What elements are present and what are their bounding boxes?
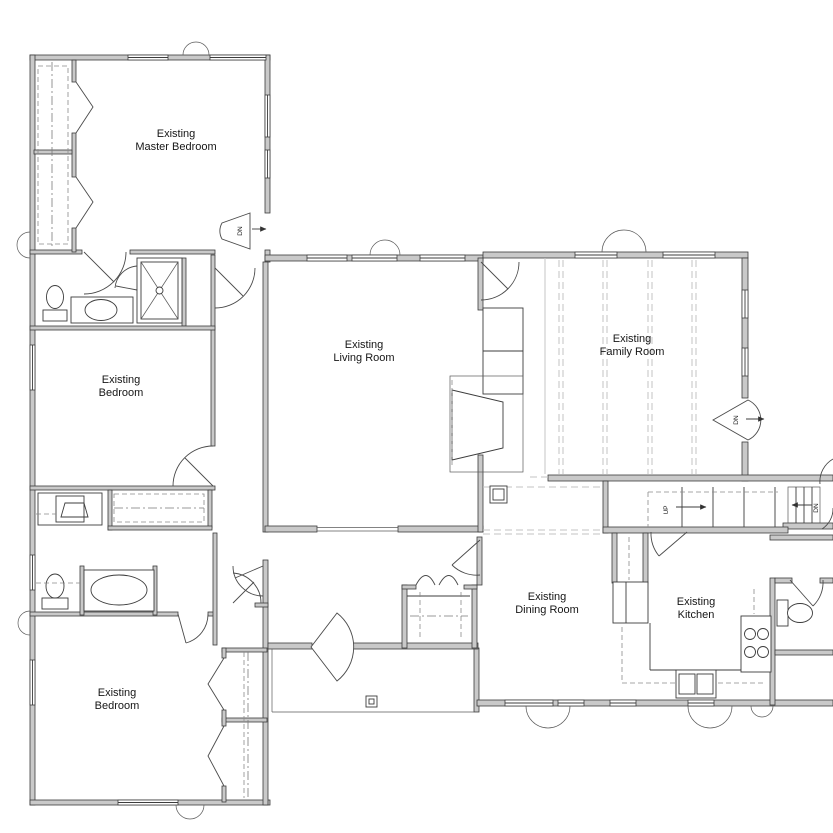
stairs-up-label: UP bbox=[663, 505, 670, 514]
shrub bbox=[17, 232, 30, 258]
window bbox=[210, 55, 266, 60]
window bbox=[663, 252, 715, 258]
door-swing-arc bbox=[115, 266, 137, 290]
refrigerator bbox=[613, 582, 648, 623]
window bbox=[610, 700, 636, 706]
window bbox=[30, 555, 35, 590]
kitchen-sink bbox=[676, 670, 716, 698]
window bbox=[128, 55, 168, 60]
hall-bathroom bbox=[36, 493, 154, 611]
window bbox=[30, 345, 35, 390]
powder-room bbox=[777, 600, 813, 626]
shrub bbox=[370, 240, 400, 255]
window bbox=[420, 255, 465, 261]
shrub bbox=[602, 230, 646, 252]
bathtub bbox=[84, 570, 154, 611]
interior-walls bbox=[30, 60, 788, 802]
porch-post bbox=[366, 696, 377, 707]
window bbox=[558, 700, 584, 706]
vanity-sink bbox=[71, 297, 133, 323]
window bbox=[352, 255, 397, 261]
window bbox=[265, 95, 270, 137]
shrub bbox=[751, 706, 773, 717]
door-swing-arc bbox=[178, 614, 208, 643]
shrub bbox=[183, 42, 209, 55]
stove bbox=[741, 616, 771, 672]
shrub bbox=[18, 611, 30, 635]
room-label-kitchen: Existing Kitchen bbox=[677, 596, 716, 622]
window bbox=[265, 150, 270, 178]
window bbox=[742, 290, 748, 318]
window bbox=[307, 255, 347, 261]
fireplace bbox=[450, 308, 523, 472]
window bbox=[742, 348, 748, 376]
bifold-door bbox=[208, 658, 224, 710]
shrub bbox=[176, 805, 204, 819]
door-swing-arc bbox=[481, 262, 519, 300]
column bbox=[490, 486, 507, 503]
room-label-bedroom-middle: Existing Bedroom bbox=[99, 374, 144, 400]
stairs-down: DN bbox=[788, 487, 820, 523]
bifold-door bbox=[208, 726, 224, 786]
firebox bbox=[452, 390, 503, 460]
bifold-door bbox=[76, 82, 93, 133]
window bbox=[575, 252, 617, 258]
room-label-dining-room: Existing Dining Room bbox=[515, 591, 579, 617]
family-room-ceiling-lines bbox=[530, 258, 696, 477]
step-down-family: DN bbox=[713, 400, 764, 440]
shower bbox=[137, 258, 182, 323]
toilet bbox=[43, 286, 67, 322]
room-label-family-room: Existing Family Room bbox=[600, 333, 665, 359]
toilet bbox=[777, 600, 813, 626]
window bbox=[688, 700, 714, 706]
bifold-door bbox=[76, 177, 93, 228]
door-swing-arc bbox=[651, 532, 687, 556]
window bbox=[118, 800, 178, 805]
front-door bbox=[311, 613, 354, 681]
shrub bbox=[526, 706, 570, 728]
floor-plan-page: UP DN DN DN bbox=[0, 0, 833, 833]
master-bathroom bbox=[43, 258, 182, 323]
door-swing-arc bbox=[452, 540, 480, 575]
step-down-fan bbox=[220, 213, 250, 249]
room-label-bedroom-bottom: Existing Bedroom bbox=[95, 687, 140, 713]
shrub bbox=[688, 706, 732, 728]
vanity-sink bbox=[36, 493, 102, 525]
door-swing-arc bbox=[215, 268, 255, 308]
window bbox=[505, 700, 553, 706]
stairs-up: UP bbox=[648, 487, 778, 527]
bifold-door bbox=[439, 576, 458, 586]
room-label-master-bedroom: Existing Master Bedroom bbox=[135, 128, 216, 154]
stair-landing bbox=[483, 486, 603, 534]
bifold-door bbox=[416, 576, 435, 586]
door-swing-arc bbox=[173, 446, 213, 486]
stairs-dn-label: DN bbox=[813, 503, 820, 513]
step-down-master: DN bbox=[220, 213, 266, 249]
room-label-living-room: Existing Living Room bbox=[333, 339, 394, 365]
door-swing-arc bbox=[84, 252, 126, 294]
window bbox=[30, 660, 35, 705]
svg-text:DN: DN bbox=[733, 415, 740, 425]
door-swing-arc bbox=[790, 580, 823, 606]
entry-porch bbox=[272, 613, 474, 712]
toilet bbox=[36, 574, 80, 609]
svg-text:DN: DN bbox=[237, 226, 244, 236]
